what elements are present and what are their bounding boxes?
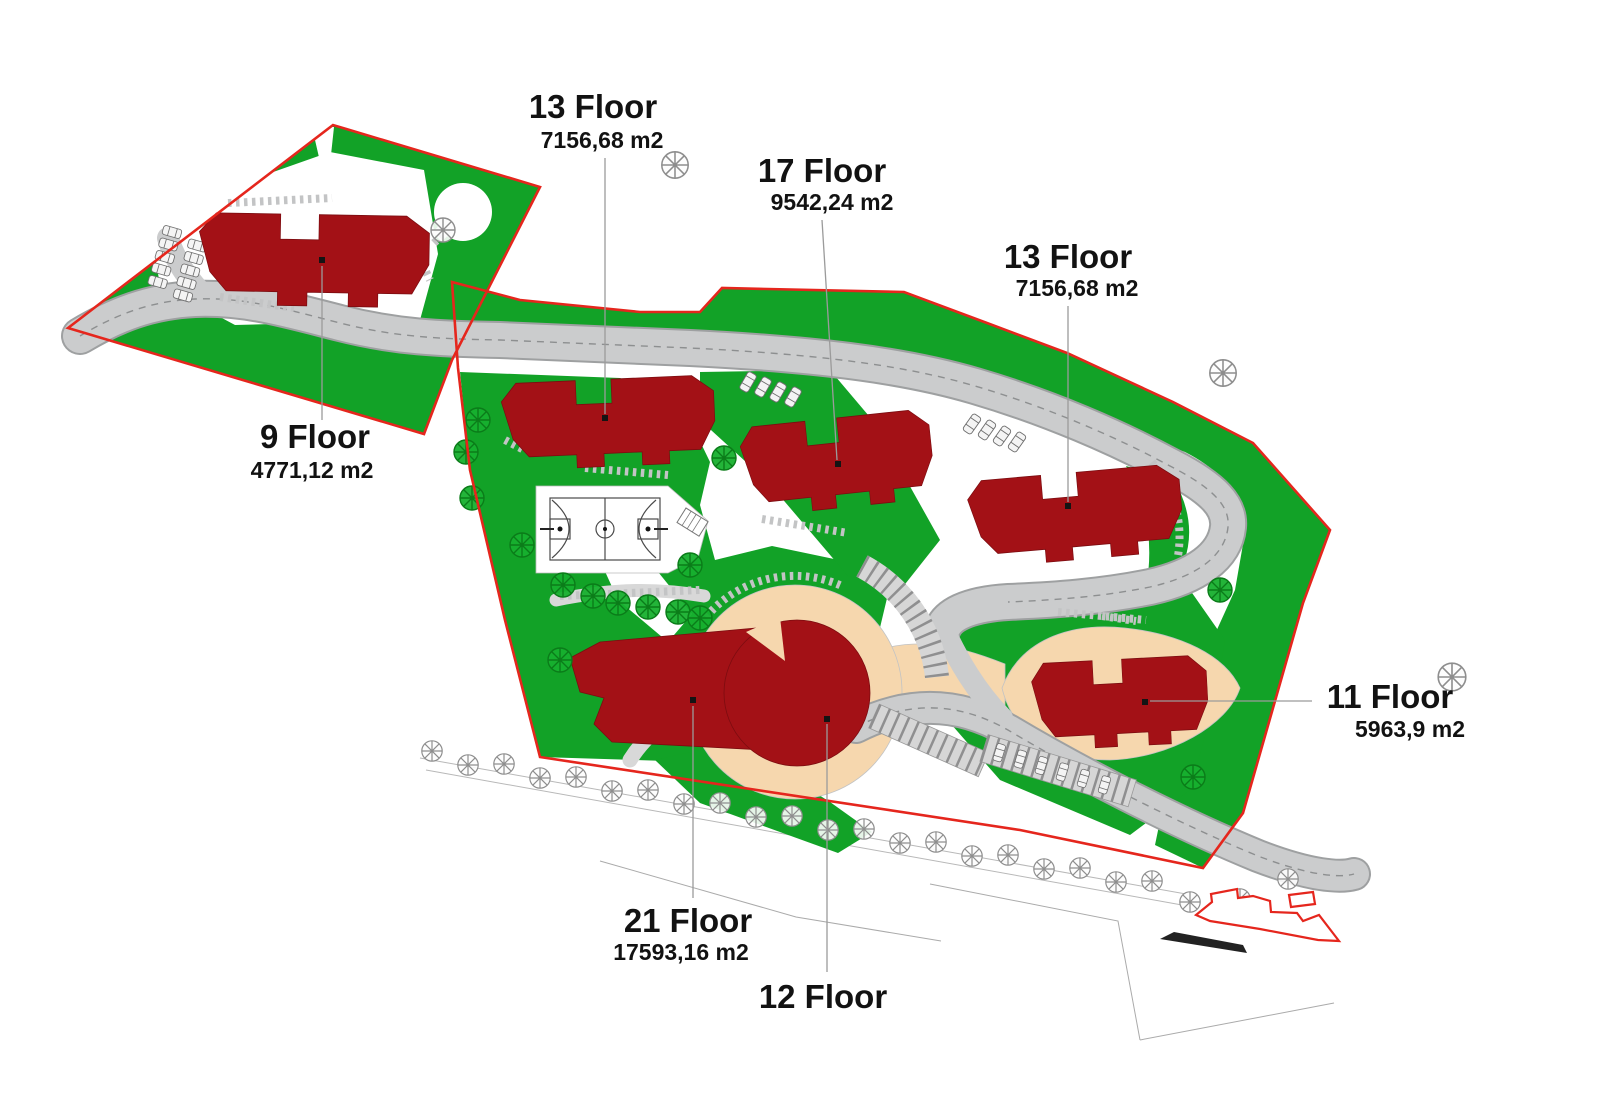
site-plan-svg: 13 Floor 7156,68 m2 17 Floor 9542,24 m2 … <box>0 0 1600 1098</box>
tree-icon <box>566 767 586 787</box>
tree-icon <box>548 648 572 672</box>
tree-icon <box>962 846 982 866</box>
tree-icon <box>638 780 658 800</box>
tree-icon <box>662 152 688 178</box>
car-icon <box>992 425 1011 447</box>
car-icon <box>962 413 981 435</box>
tree-icon <box>1208 578 1232 602</box>
car-icon <box>1007 431 1026 453</box>
building-center-marker <box>824 716 830 722</box>
existing-building-outline <box>1289 892 1315 907</box>
building-label-9-floor: 9 Floor <box>260 418 370 455</box>
tree-icon <box>530 768 550 788</box>
tree-icon <box>466 408 490 432</box>
tree-icon <box>1181 765 1205 789</box>
building-center-marker <box>602 415 608 421</box>
building-center-marker <box>690 697 696 703</box>
tree-icon <box>746 807 766 827</box>
tree-icon <box>422 741 442 761</box>
road-marker <box>1160 932 1247 953</box>
car-icon <box>977 419 996 441</box>
building-center-marker <box>319 257 325 263</box>
tree-icon <box>636 595 660 619</box>
tree-icon <box>602 781 622 801</box>
tree-icon <box>1210 360 1236 386</box>
building-12-floor[interactable] <box>724 620 870 766</box>
tree-icon <box>1142 871 1162 891</box>
tree-icon <box>431 218 455 242</box>
tree-icon <box>494 754 514 774</box>
tree-icon <box>1180 892 1200 912</box>
tree-icon <box>688 606 712 630</box>
tree-icon <box>712 446 736 470</box>
building-label-21-floor: 21 Floor <box>624 902 753 939</box>
tree-icon <box>926 832 946 852</box>
tree-icon <box>782 806 802 826</box>
tree-icon <box>606 591 630 615</box>
building-label-13e-area: 7156,68 m2 <box>1016 275 1139 301</box>
tree-icon <box>998 845 1018 865</box>
building-label-17-area: 9542,24 m2 <box>771 189 894 215</box>
tree-icon <box>1278 869 1298 889</box>
site-plan: 13 Floor 7156,68 m2 17 Floor 9542,24 m2 … <box>0 0 1600 1098</box>
tree-icon <box>818 820 838 840</box>
tree-icon <box>551 573 575 597</box>
building-label-9-area: 4771,12 m2 <box>251 457 374 483</box>
tree-icon <box>1034 859 1054 879</box>
tree-icon <box>890 833 910 853</box>
tree-icon <box>674 794 694 814</box>
building-center-marker <box>1065 503 1071 509</box>
tree-icon <box>666 600 690 624</box>
tree-icon <box>510 533 534 557</box>
tree-icon <box>854 819 874 839</box>
tree-icon <box>710 793 730 813</box>
building-center-marker <box>1142 699 1148 705</box>
tree-icon <box>1070 858 1090 878</box>
tree-icon <box>678 553 702 577</box>
building-label-13e-floor: 13 Floor <box>1004 238 1133 275</box>
building-label-11-area: 5963,9 m2 <box>1355 716 1465 742</box>
tree-icon <box>458 755 478 775</box>
building-label-11-floor: 11 Floor <box>1327 678 1454 715</box>
building-label-13w-area: 7156,68 m2 <box>541 127 664 153</box>
tree-icon <box>581 584 605 608</box>
building-center-marker <box>835 461 841 467</box>
existing-building-outline <box>1196 889 1339 941</box>
building-label-21-area: 17593,16 m2 <box>613 939 749 965</box>
tree-icon <box>460 486 484 510</box>
building-label-12-floor: 12 Floor <box>759 978 888 1015</box>
building-label-13w-floor: 13 Floor <box>529 88 658 125</box>
building-label-17-floor: 17 Floor <box>758 152 887 189</box>
tree-icon <box>1106 872 1126 892</box>
